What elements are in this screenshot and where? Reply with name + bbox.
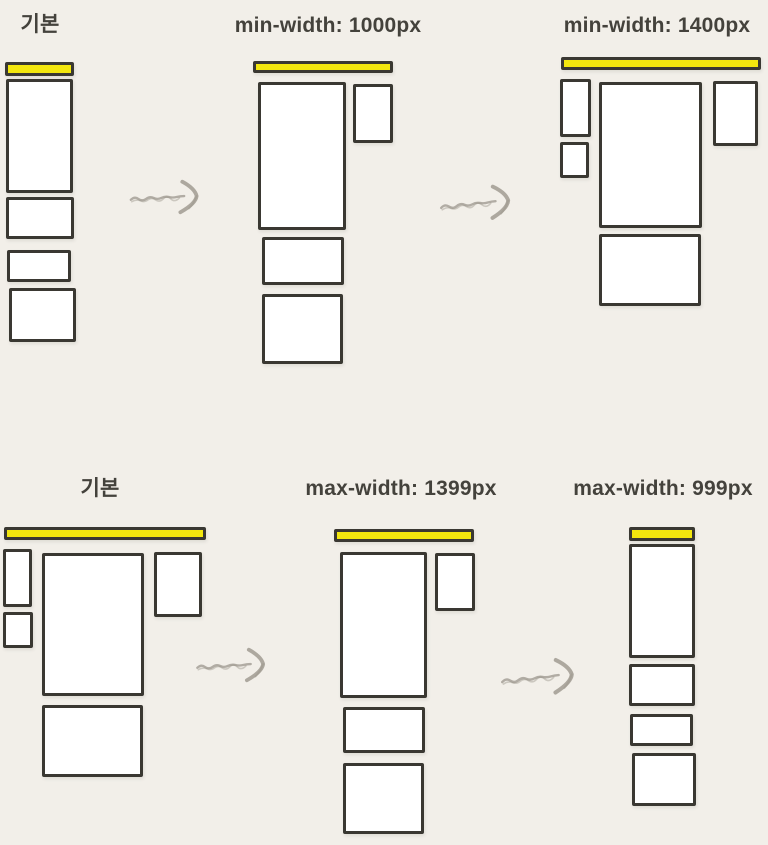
panel-title-max-width-999: max-width: 999px (573, 476, 752, 502)
min-1400-block-4 (713, 81, 758, 146)
min-1000-header-bar (253, 61, 393, 73)
max-1399-block-3 (343, 707, 425, 753)
min-1400-block-1 (560, 79, 591, 137)
min-1400-block-3 (599, 82, 702, 228)
basic-bottom-block-4 (154, 552, 202, 617)
max-999-block-3 (630, 714, 693, 746)
basic-bottom-header-bar (4, 527, 206, 540)
max-999-block-1 (629, 544, 695, 658)
panel-title-min-width-1400: min-width: 1400px (564, 13, 751, 39)
basic-bottom-block-2 (3, 612, 33, 648)
arrow-right-icon (437, 179, 521, 227)
max-999-block-4 (632, 753, 696, 806)
arrow-right-icon (498, 652, 585, 702)
max-999-header-bar (629, 527, 695, 541)
panel-title-basic-bottom: 기본 (80, 476, 119, 502)
min-1400-block-2 (560, 142, 589, 178)
min-1000-block-3 (262, 237, 344, 285)
panel-title-max-width-1399: max-width: 1399px (305, 476, 496, 502)
min-1400-header-bar (561, 57, 761, 70)
max-1399-block-2 (435, 553, 475, 611)
basic-bottom-block-5 (42, 705, 143, 777)
max-1399-block-1 (340, 552, 427, 698)
basic-bottom-block-1 (3, 549, 32, 607)
max-1399-block-4 (343, 763, 424, 834)
basic-top-block-1 (6, 79, 73, 193)
min-1000-block-1 (258, 82, 346, 230)
basic-top-block-4 (9, 288, 76, 342)
basic-top-header-bar (5, 62, 74, 76)
responsive-breakpoints-diagram: 기본 min-width: 1000px min-width: 1400px 기… (0, 0, 768, 845)
min-1400-block-5 (599, 234, 701, 306)
max-1399-header-bar (334, 529, 474, 542)
min-1000-block-2 (353, 84, 393, 143)
panel-title-basic-top: 기본 (20, 12, 59, 38)
arrow-right-icon (193, 644, 276, 686)
basic-bottom-block-3 (42, 553, 144, 696)
panel-title-min-width-1000: min-width: 1000px (235, 13, 422, 39)
arrow-right-icon (126, 176, 210, 218)
min-1000-block-4 (262, 294, 343, 364)
basic-top-block-3 (7, 250, 71, 282)
max-999-block-2 (629, 664, 695, 706)
basic-top-block-2 (6, 197, 74, 239)
